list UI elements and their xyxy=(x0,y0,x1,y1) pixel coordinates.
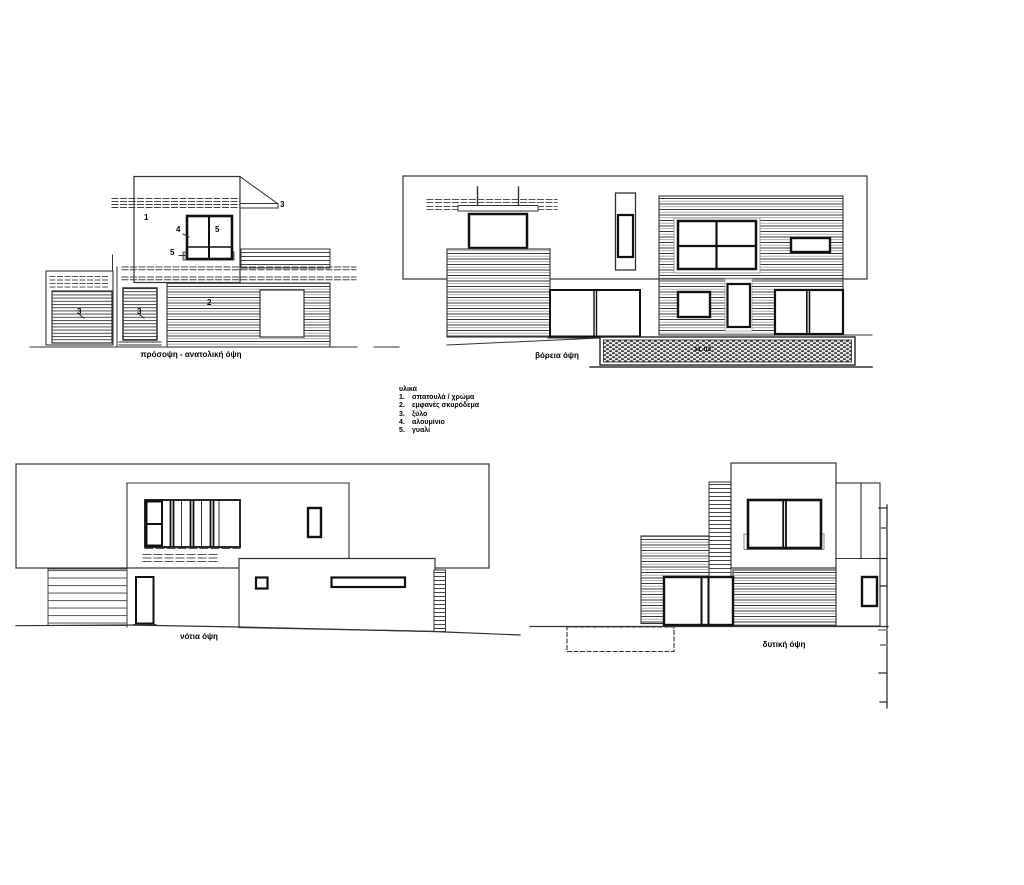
elevations-linework xyxy=(0,0,1024,885)
material-callout-wood-garage: 3 xyxy=(77,308,81,316)
south-elevation-title: νότια όψη xyxy=(180,633,218,641)
west-elevation-title: δυτική όψη xyxy=(763,641,806,649)
legend-item: 2. εμφανές σκυρόδεμα xyxy=(399,402,479,410)
legend-item: 3. ξύλο xyxy=(399,411,479,419)
drawing-sheet: πρόσοψη - ανατολική όψη βόρεια όψη νότια… xyxy=(0,0,1024,885)
material-callout-aluminium: 4 xyxy=(176,226,180,234)
material-callout-wood-eave: 3 xyxy=(280,201,284,209)
south-elevation-drawing xyxy=(16,464,520,635)
material-callout-wood-door: 3 xyxy=(137,308,141,316)
material-callout-glass: 5 xyxy=(215,226,219,234)
east-elevation-drawing xyxy=(30,177,399,348)
west-elevation-drawing xyxy=(530,463,888,708)
north-elevation-drawing xyxy=(403,176,872,367)
material-callout-concrete: 2 xyxy=(207,299,211,307)
material-callout-glass-sill: 5 xyxy=(170,249,174,257)
material-callout-plaster: 1 xyxy=(144,214,148,222)
materials-legend-title: υλικά xyxy=(399,386,479,394)
materials-legend: υλικά 1. σπατουλά / χρώμα 2. εμφανές σκυ… xyxy=(399,386,479,435)
legend-item: 1. σπατουλά / χρώμα xyxy=(399,394,479,402)
retaining-wall-level-note: 11.02 xyxy=(694,347,711,354)
legend-item: 5. γυαλί xyxy=(399,427,479,435)
north-elevation-title: βόρεια όψη xyxy=(535,352,579,360)
legend-item: 4. αλουμίνιο xyxy=(399,419,479,427)
east-elevation-title: πρόσοψη - ανατολική όψη xyxy=(141,351,242,359)
